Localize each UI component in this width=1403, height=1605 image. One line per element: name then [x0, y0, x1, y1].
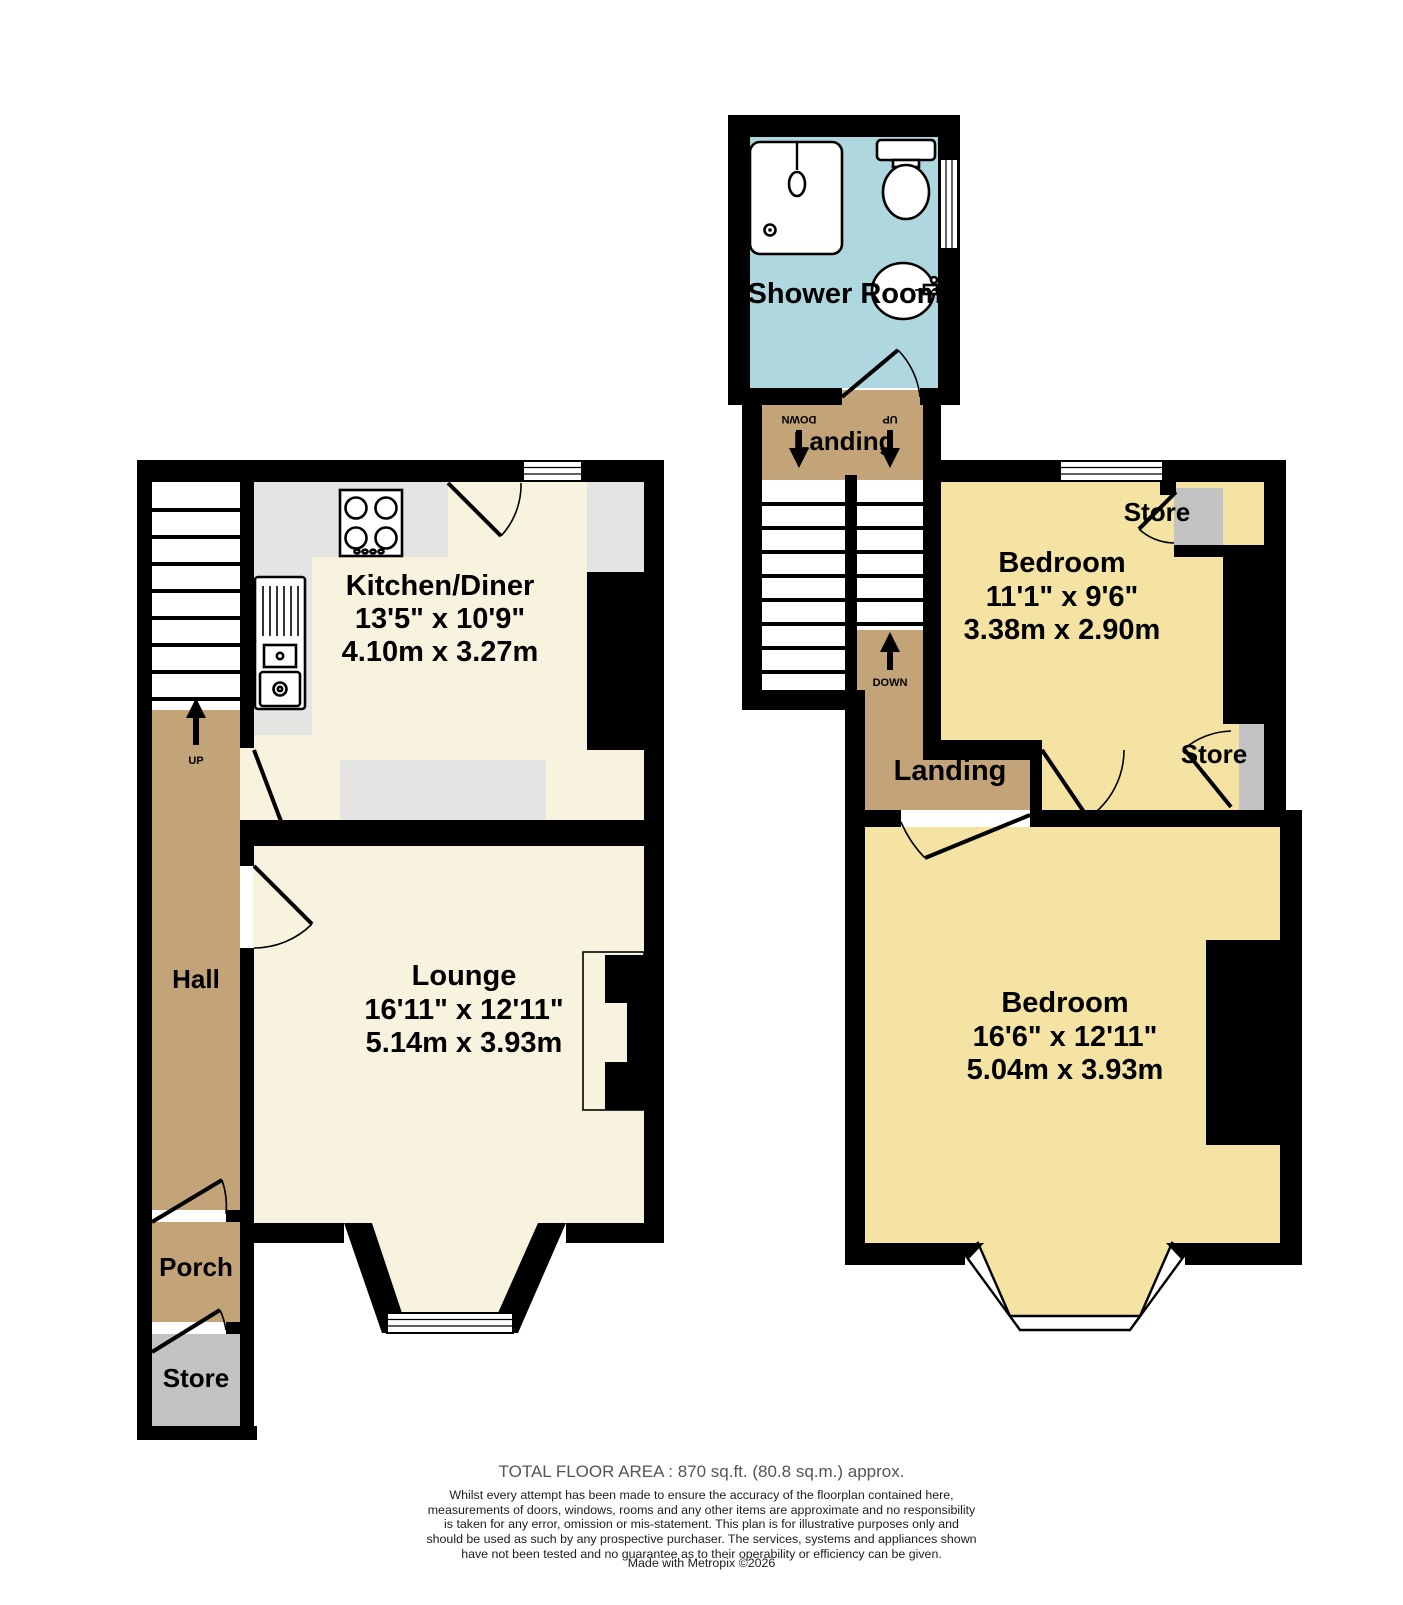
- lounge-label: Lounge: [412, 960, 517, 992]
- bay-window-glass: [387, 1313, 513, 1333]
- top-landing-up-label: UP: [882, 413, 897, 425]
- kitchen-imperial: 13'5" x 10'9": [355, 603, 525, 635]
- stairs-up-label: UP: [188, 755, 203, 767]
- kitchen-window: [523, 461, 582, 481]
- store-ground-label: Store: [163, 1363, 229, 1393]
- ground-floor-plan: UP: [137, 460, 664, 1440]
- mid-landing-label: Landing: [894, 755, 1007, 787]
- hall-label: Hall: [172, 964, 220, 994]
- floorplan-canvas: UP: [0, 0, 1403, 1600]
- top-landing-label: Landing: [793, 426, 894, 456]
- kitchen-label: Kitchen/Diner: [346, 570, 535, 602]
- bedroom-back-window: [1060, 461, 1163, 481]
- lounge-metric: 5.14m x 3.93m: [366, 1027, 563, 1059]
- mid-landing-down-label: DOWN: [873, 677, 908, 689]
- disclaimer-text: Whilst every attempt has been made to en…: [426, 1488, 978, 1561]
- lounge-imperial: 16'11" x 12'11": [364, 994, 563, 1026]
- hall-floor: [152, 710, 240, 1210]
- bedroom-front-imperial: 16'6" x 12'11": [973, 1021, 1158, 1053]
- bedroom-front-label: Bedroom: [1001, 987, 1128, 1019]
- store-lower-label: Store: [1181, 739, 1247, 769]
- shower-room-label: Shower Room: [748, 278, 943, 310]
- kitchen-metric: 4.10m x 3.27m: [342, 636, 539, 668]
- bedroom-front-metric: 5.04m x 3.93m: [967, 1054, 1164, 1086]
- porch-label: Porch: [159, 1252, 233, 1282]
- stairs-left-floor: [762, 480, 845, 710]
- hob-icon: [340, 490, 402, 556]
- bedroom-back-imperial: 11'1" x 9'6": [986, 581, 1139, 613]
- shower-room-window: [940, 159, 958, 249]
- fireplace-icon: [583, 952, 644, 1110]
- total-floor-area: TOTAL FLOOR AREA : 870 sq.ft. (80.8 sq.m…: [0, 1462, 1403, 1482]
- bedroom-back-metric: 3.38m x 2.90m: [964, 614, 1161, 646]
- sink-icon: [252, 577, 305, 709]
- stairs-floor: [152, 482, 240, 715]
- shower-tray-icon: [750, 142, 842, 254]
- toilet-icon: [877, 140, 935, 219]
- store-upper-label: Store: [1124, 497, 1190, 527]
- metropix-credit: Made with Metropix ©2026: [0, 1556, 1403, 1570]
- top-landing-down-label: DOWN: [782, 413, 817, 425]
- first-floor-plan: DOWN UP DOWN Shower Room Landing Landing…: [728, 115, 1302, 1330]
- bedroom-back-label: Bedroom: [998, 547, 1125, 579]
